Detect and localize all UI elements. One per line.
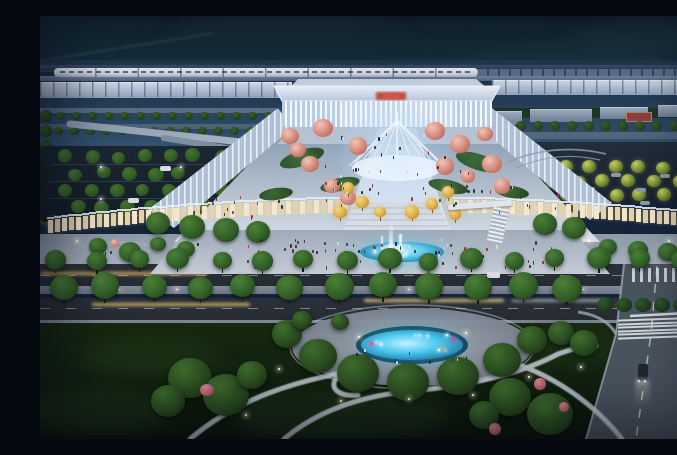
forecourt-tree xyxy=(533,213,557,235)
arcade-parapet xyxy=(551,200,558,202)
park-tree xyxy=(331,314,349,331)
arcade-parapet xyxy=(250,200,257,202)
arcade-shop-cell xyxy=(517,202,522,215)
person-canopy-steps xyxy=(378,137,380,140)
person-right-terrace xyxy=(490,204,492,207)
person-sidewalk xyxy=(197,243,199,246)
person-pond-plaza xyxy=(429,360,431,363)
arcade-parapet xyxy=(663,208,670,210)
person-forecourt xyxy=(535,241,537,244)
person-sidewalk xyxy=(374,249,376,252)
person-pond-plaza xyxy=(364,349,366,352)
arcade-shop-cell xyxy=(111,213,116,226)
arcade-shop-cell xyxy=(559,204,564,217)
arcade-shop-cell xyxy=(132,211,137,224)
person-upper-plaza xyxy=(425,192,427,195)
boulevard-tree xyxy=(509,272,539,299)
person-upper-plaza xyxy=(466,185,468,188)
arcade-shop-cell xyxy=(636,209,641,222)
park-tree xyxy=(483,343,521,378)
boulevard-tree xyxy=(276,275,303,300)
arcade-shop-cell xyxy=(62,218,67,231)
arcade-parapet xyxy=(656,208,663,210)
person-forecourt xyxy=(395,242,397,245)
arcade-parapet xyxy=(138,207,145,209)
forecourt-tree xyxy=(146,212,170,234)
arcade-parapet xyxy=(61,215,68,217)
arcade-shop-cell xyxy=(139,210,144,223)
boulevard-tree xyxy=(213,252,232,270)
arcade-parapet xyxy=(145,207,152,209)
arcade-shop-cell xyxy=(209,205,214,218)
arcade-shop-cell xyxy=(83,216,88,229)
person-forecourt xyxy=(442,262,444,265)
person-upper-plaza xyxy=(455,202,457,205)
park-blossom-shrub xyxy=(489,423,501,434)
arcade-shop-cell xyxy=(608,207,613,220)
arcade-parapet xyxy=(600,203,607,205)
person-upper-plaza xyxy=(473,189,475,192)
park-blossom-shrub xyxy=(534,378,546,389)
person-upper-plaza xyxy=(372,184,374,187)
person-upper-plaza xyxy=(369,188,371,191)
arcade-shop-cell xyxy=(580,205,585,218)
person-canopy-steps xyxy=(423,134,425,137)
arcade-shop-cell xyxy=(216,205,221,218)
boulevard-tree xyxy=(325,273,354,300)
boulevard-tree xyxy=(293,250,313,268)
boulevard-tree xyxy=(378,248,401,269)
arcade-parapet xyxy=(194,203,201,205)
boulevard-tree xyxy=(545,249,565,267)
arcade-parapet xyxy=(110,210,117,212)
person-pond-plaza xyxy=(356,353,358,356)
person-upper-plaza xyxy=(368,170,370,173)
person-forecourt xyxy=(450,244,452,247)
arcade-parapet xyxy=(124,209,131,211)
arcade-parapet xyxy=(54,216,61,218)
arcade-parapet xyxy=(89,212,96,214)
arcade-parapet xyxy=(47,217,54,219)
blossom-tree xyxy=(477,127,493,141)
park-blossom-shrub xyxy=(559,402,569,411)
person-forecourt xyxy=(260,239,262,242)
person-forecourt xyxy=(438,254,440,257)
arcade-parapet xyxy=(649,207,656,209)
arcade-parapet xyxy=(614,204,621,206)
park-tree xyxy=(387,363,429,402)
boulevard-tree xyxy=(50,275,78,300)
arcade-parapet xyxy=(628,205,635,207)
person-canopy-steps xyxy=(342,137,344,140)
person-sidewalk xyxy=(290,244,292,247)
park-tree xyxy=(237,361,267,389)
arcade-parapet xyxy=(201,203,208,205)
boulevard-tree xyxy=(505,252,524,270)
person-sidewalk xyxy=(312,250,314,253)
park-lamp xyxy=(408,398,410,400)
arcade-parapet xyxy=(173,205,180,207)
blossom-tree xyxy=(313,119,333,137)
park-lamp xyxy=(472,394,474,396)
park-tree xyxy=(570,330,598,356)
park-tree xyxy=(151,385,185,416)
arcade-parapet xyxy=(117,209,124,211)
park-lamp xyxy=(580,366,582,368)
forecourt-tree xyxy=(179,215,205,239)
arcade-parapet xyxy=(544,200,551,202)
headlight-beam xyxy=(635,382,650,408)
arcade-parapet xyxy=(572,201,579,203)
arcade-parapet xyxy=(670,209,677,211)
arcade-shop-cell xyxy=(594,206,599,219)
person-sidewalk xyxy=(447,244,449,247)
station-night-rendering: Night-time aerial architectural renderin… xyxy=(40,16,677,439)
zebra-stripe xyxy=(648,268,651,282)
park-lamp xyxy=(528,376,530,378)
arcade-shop-cell xyxy=(664,211,669,224)
forecourt-tree xyxy=(562,217,586,239)
boulevard-tree xyxy=(45,250,66,269)
arcade-parapet xyxy=(586,202,593,204)
park-lamp xyxy=(358,336,360,338)
person-left-terrace xyxy=(240,196,242,199)
zebra-stripe xyxy=(672,268,675,282)
person-right-terrace xyxy=(499,211,501,214)
zebra-stripe xyxy=(640,268,643,282)
arcade-shop-cell xyxy=(118,212,123,225)
arcade-parapet xyxy=(180,204,187,206)
golden-lit-tree xyxy=(333,206,346,218)
arcade-parapet xyxy=(243,200,250,202)
person-upper-plaza xyxy=(411,197,413,200)
arcade-shop-cell xyxy=(202,206,207,219)
arcade-parapet xyxy=(187,203,194,205)
fountain-sparkle xyxy=(405,253,407,255)
person-pond-plaza xyxy=(409,352,411,355)
forecourt-blossom xyxy=(111,239,119,246)
forecourt-tree xyxy=(213,218,239,242)
arcade-shop-cell xyxy=(671,212,676,225)
park-lamp xyxy=(245,414,247,416)
arcade-shop-cell xyxy=(237,203,242,216)
zebra-stripe xyxy=(664,268,667,282)
person-left-terrace xyxy=(257,202,259,205)
zebra-stripe xyxy=(656,268,659,282)
arcade-shop-cell xyxy=(48,220,53,233)
park-tree xyxy=(299,339,337,374)
person-left-terrace xyxy=(216,198,218,201)
arcade-parapet xyxy=(222,201,229,203)
person-forecourt xyxy=(452,252,454,255)
person-upper-plaza xyxy=(340,175,342,178)
boulevard-tree xyxy=(166,248,189,269)
golden-lit-tree xyxy=(442,186,454,197)
boulevard-tree xyxy=(587,247,611,269)
canopy-glow xyxy=(358,110,438,176)
car-headlights-down xyxy=(638,364,649,382)
arcade-parapet xyxy=(96,211,103,213)
person-upper-plaza xyxy=(451,184,453,187)
person-forecourt xyxy=(496,245,498,248)
arcade-shop-cell xyxy=(90,215,95,228)
person-sidewalk xyxy=(316,251,318,254)
person-forecourt xyxy=(533,261,535,264)
person-upper-plaza xyxy=(361,191,363,194)
person-forecourt xyxy=(414,250,416,253)
golden-lit-tree xyxy=(405,205,419,218)
arcade-parapet xyxy=(236,200,243,202)
arcade-parapet xyxy=(642,207,649,209)
boulevard-tree xyxy=(91,272,120,298)
arcade-parapet xyxy=(159,206,166,208)
arcade-parapet xyxy=(621,205,628,207)
arcade-shop-cell xyxy=(76,217,81,230)
golden-lit-tree xyxy=(426,198,438,209)
arcade-shop-cell xyxy=(601,206,606,219)
blossom-tree xyxy=(349,137,367,154)
arcade-shop-cell xyxy=(629,208,634,221)
arcade-shop-cell xyxy=(69,217,74,230)
golden-lit-tree xyxy=(355,196,369,209)
arcade-shop-cell xyxy=(97,214,102,227)
person-forecourt xyxy=(337,242,339,245)
person-forecourt xyxy=(542,261,544,264)
boulevard-tree xyxy=(252,251,273,271)
person-canopy-steps xyxy=(374,146,376,149)
park-lamp xyxy=(340,400,342,402)
boulevard-tree xyxy=(415,273,444,299)
arcade-parapet xyxy=(68,214,75,216)
arcade-parapet xyxy=(82,213,89,215)
arcade-parapet xyxy=(537,199,544,201)
arcade-shop-cell xyxy=(587,205,592,218)
arcade-shop-cell xyxy=(573,204,578,217)
park-lamp xyxy=(465,332,467,334)
park-tree xyxy=(337,354,379,393)
golden-lit-tree xyxy=(374,207,385,218)
arcade-parapet xyxy=(75,214,82,216)
arcade-shop-cell xyxy=(643,210,648,223)
arcade-parapet xyxy=(565,201,572,203)
blossom-tree xyxy=(494,178,510,193)
person-forecourt xyxy=(438,251,440,254)
person-upper-plaza xyxy=(325,182,327,185)
park-lamp xyxy=(278,368,280,370)
arcade-shop-cell xyxy=(125,212,130,225)
person-pond-plaza xyxy=(466,356,468,359)
arcade-parapet xyxy=(635,206,642,208)
arcade-shop-cell xyxy=(244,203,249,216)
arcade-shop-cell xyxy=(650,210,655,223)
arcade-parapet xyxy=(558,201,565,203)
arcade-shop-cell xyxy=(174,208,179,221)
boulevard-tree xyxy=(460,248,482,269)
person-left-terrace xyxy=(281,205,283,208)
person-forecourt xyxy=(325,249,327,252)
park-tree xyxy=(292,311,312,329)
arcade-parapet xyxy=(103,211,110,213)
arcade-parapet xyxy=(523,199,530,201)
person-upper-plaza xyxy=(355,168,357,171)
person-forecourt xyxy=(335,249,337,252)
person-forecourt xyxy=(295,245,297,248)
person-forecourt xyxy=(435,251,437,254)
zebra-stripe xyxy=(632,268,635,282)
parking-entry-loops xyxy=(508,150,606,169)
arcade-shop-cell xyxy=(265,202,270,215)
person-forecourt xyxy=(529,265,531,268)
person-forecourt xyxy=(373,245,375,248)
park-tree xyxy=(517,326,547,354)
arcade-shop-cell xyxy=(55,219,60,232)
boulevard-tree xyxy=(464,274,492,300)
person-sidewalk xyxy=(381,244,383,247)
person-upper-plaza xyxy=(406,196,408,199)
person-forecourt xyxy=(441,238,443,241)
arcade-shop-cell xyxy=(622,208,627,221)
person-sidewalk xyxy=(358,250,360,253)
person-canopy-steps xyxy=(399,147,401,150)
arcade-parapet xyxy=(607,204,614,206)
boulevard-tree xyxy=(630,249,650,267)
forecourt-tree xyxy=(246,221,270,243)
arcade-shop-cell xyxy=(258,202,263,215)
boulevard-tree xyxy=(188,277,212,299)
arcade-parapet xyxy=(215,202,222,204)
arcade-parapet xyxy=(152,206,159,208)
arcade-shop-cell xyxy=(251,203,256,216)
arcade-shop-cell xyxy=(566,204,571,217)
person-forecourt xyxy=(284,248,286,251)
person-right-terrace xyxy=(535,206,537,209)
person-upper-plaza xyxy=(341,204,343,207)
arcade-parapet xyxy=(166,205,173,207)
person-right-terrace xyxy=(557,194,559,197)
arcade-parapet xyxy=(530,199,537,201)
arcade-shop-cell xyxy=(272,202,277,215)
arcade-shop-cell xyxy=(615,207,620,220)
person-pond-plaza xyxy=(396,361,398,364)
blossom-tree xyxy=(290,143,306,157)
park-tree xyxy=(437,357,479,396)
blossom-tree xyxy=(301,156,319,172)
person-forecourt xyxy=(292,249,294,252)
park-tree xyxy=(527,393,573,435)
boulevard-tree xyxy=(142,275,167,298)
arcade-shop-cell xyxy=(104,214,109,227)
arcade-parapet xyxy=(593,203,600,205)
person-left-terrace xyxy=(278,200,280,203)
blossom-tree xyxy=(482,155,502,173)
boulevard-tree xyxy=(552,275,582,302)
person-upper-plaza xyxy=(346,191,348,194)
person-upper-plaza xyxy=(337,182,339,185)
fountain-sparkle xyxy=(402,255,404,257)
arcade-parapet xyxy=(579,202,586,204)
arcade-shop-cell xyxy=(657,211,662,224)
arcade-parapet xyxy=(131,208,138,210)
person-upper-plaza xyxy=(437,166,439,169)
boulevard-tree xyxy=(337,251,358,270)
boulevard-tree xyxy=(87,252,107,270)
person-canopy-steps xyxy=(381,153,383,156)
